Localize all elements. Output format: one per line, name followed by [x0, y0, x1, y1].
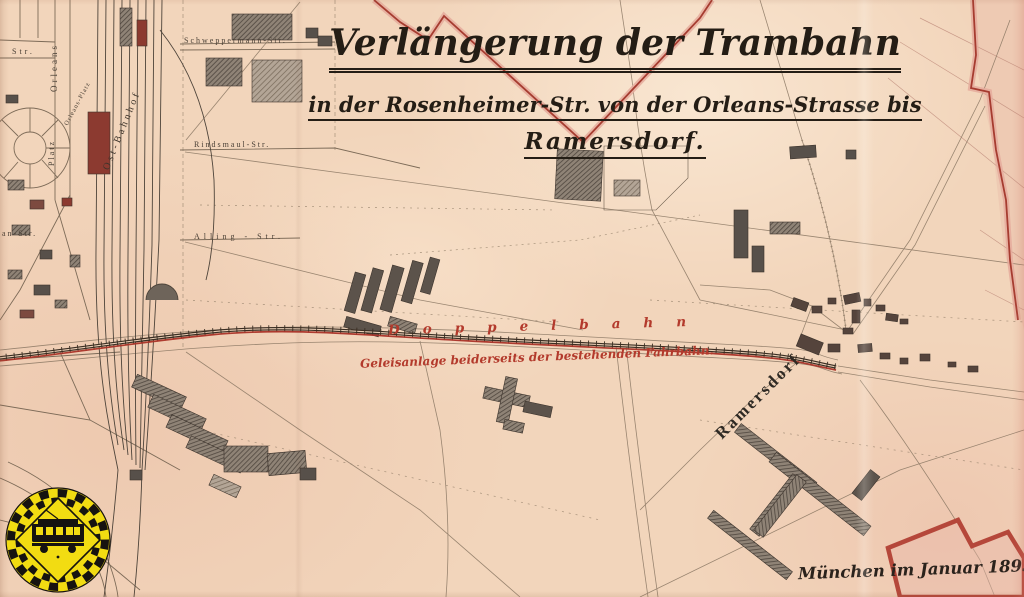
street-label-an-str-fragment: an-Str. — [2, 230, 37, 238]
tram-museum-logo-drawing — [2, 485, 114, 597]
parcel-lines — [183, 0, 1024, 520]
logo-dot — [57, 556, 60, 559]
street-label-rindsmaul: Rindsmaul-Str. — [194, 141, 270, 149]
street-label-alling: Alling - Str. — [194, 233, 284, 241]
street-label-str-fragment: Str. — [12, 48, 35, 56]
map-drawing — [0, 0, 1024, 597]
title-line-2: in der Rosenheimer-Str. von der Orleans-… — [305, 92, 925, 117]
street-label-platz: Platz — [48, 140, 56, 166]
street-label-orleans: Orleans — [50, 43, 59, 92]
title-line-1: Verlängerung der Trambahn — [315, 22, 915, 64]
tram-museum-logo — [2, 485, 114, 597]
street-label-schweppermann: Schweppermann-Str. — [184, 37, 287, 45]
map-canvas: Verlängerung der Trambahn in der Rosenhe… — [0, 0, 1024, 597]
title-line-3: Ramersdorf. — [315, 128, 915, 155]
